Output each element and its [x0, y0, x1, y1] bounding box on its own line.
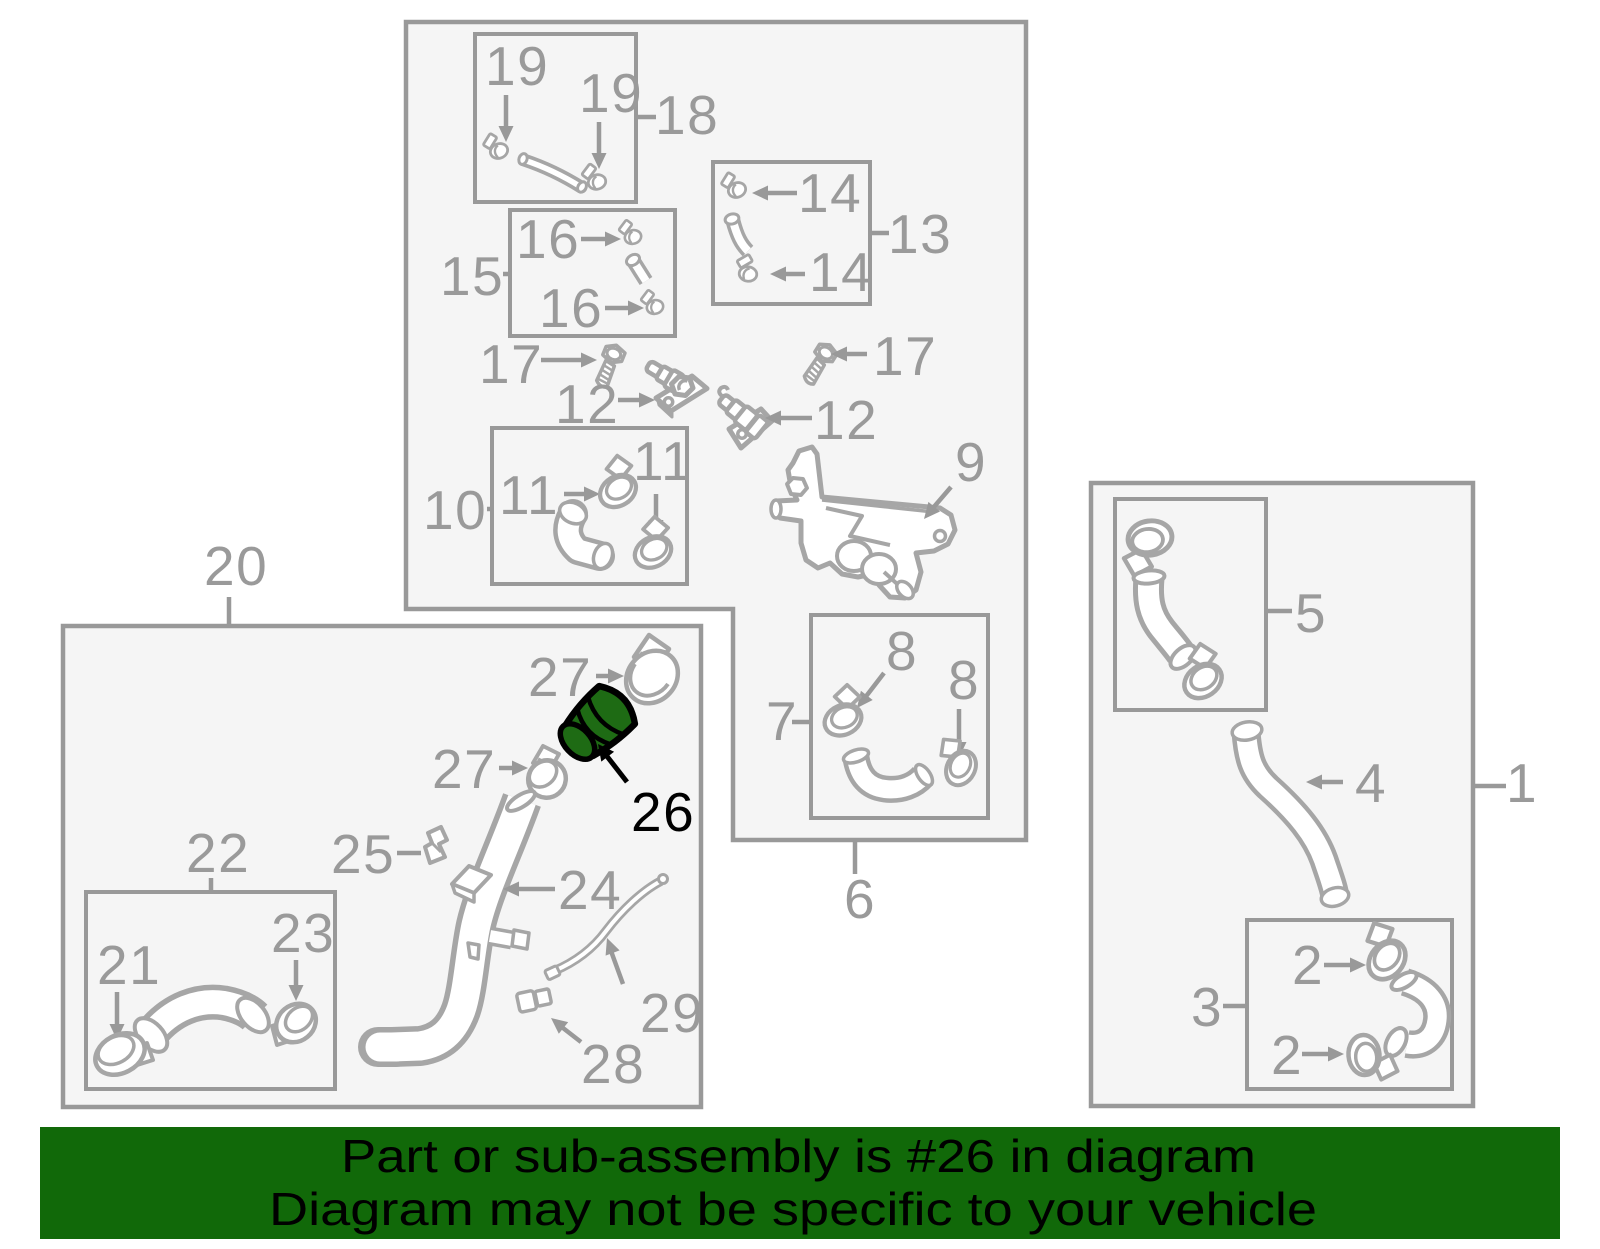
svg-text:21: 21: [97, 934, 161, 996]
svg-text:8: 8: [886, 620, 918, 682]
svg-text:23: 23: [271, 902, 335, 964]
svg-text:24: 24: [558, 859, 622, 921]
svg-text:22: 22: [186, 822, 250, 884]
svg-text:17: 17: [479, 333, 543, 395]
svg-text:16: 16: [516, 208, 580, 270]
svg-text:11: 11: [633, 430, 693, 492]
svg-text:Diagram may not be specific to: Diagram may not be specific to your vehi…: [269, 1183, 1317, 1235]
svg-text:18: 18: [655, 84, 719, 146]
svg-text:16: 16: [539, 277, 603, 339]
svg-text:4: 4: [1355, 752, 1387, 814]
svg-text:11: 11: [499, 464, 559, 526]
svg-text:27: 27: [432, 738, 496, 800]
svg-text:14: 14: [798, 162, 862, 224]
svg-text:29: 29: [640, 982, 704, 1044]
svg-text:13: 13: [888, 203, 952, 265]
svg-text:12: 12: [814, 389, 878, 451]
svg-text:19: 19: [485, 35, 549, 97]
svg-text:20: 20: [204, 535, 268, 597]
svg-text:6: 6: [844, 868, 876, 930]
svg-text:10: 10: [423, 479, 487, 541]
svg-text:5: 5: [1295, 582, 1327, 644]
svg-text:15: 15: [440, 245, 504, 307]
svg-text:28: 28: [581, 1033, 645, 1095]
svg-text:17: 17: [873, 325, 937, 387]
svg-text:2: 2: [1292, 934, 1324, 996]
svg-text:12: 12: [555, 373, 619, 435]
svg-text:8: 8: [948, 649, 980, 711]
svg-text:26: 26: [631, 781, 695, 843]
svg-text:19: 19: [579, 62, 643, 124]
svg-text:2: 2: [1271, 1024, 1303, 1086]
svg-text:9: 9: [955, 431, 987, 493]
svg-text:14: 14: [809, 241, 873, 303]
svg-text:1: 1: [1506, 752, 1538, 814]
svg-text:25: 25: [331, 823, 395, 885]
svg-text:3: 3: [1191, 976, 1223, 1038]
svg-text:Part or sub-assembly is #26 in: Part or sub-assembly is #26 in diagram: [341, 1130, 1256, 1182]
